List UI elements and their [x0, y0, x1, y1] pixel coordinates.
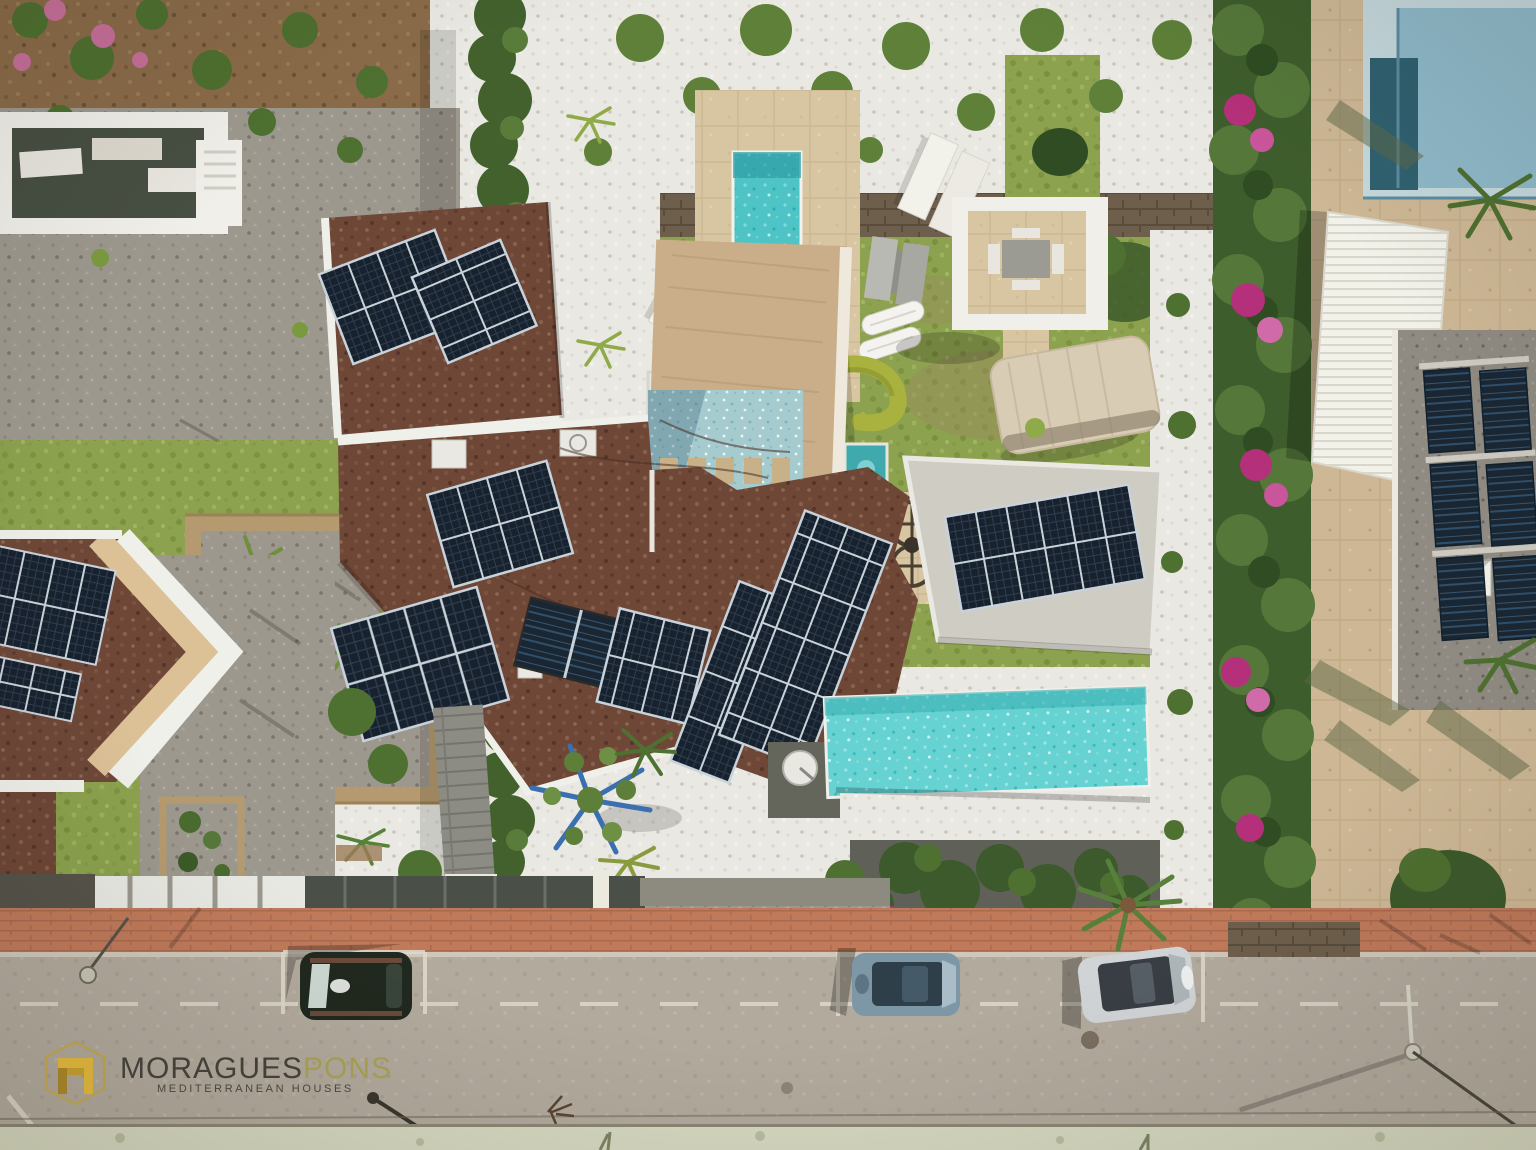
aerial-photo-stage: MORAGUESPONS MEDITERRANEAN HOUSES: [0, 0, 1536, 1150]
vignette: [0, 0, 1536, 1150]
aerial-photo: MORAGUESPONS MEDITERRANEAN HOUSES: [0, 0, 1536, 1150]
brand-wordmark: MORAGUESPONS: [120, 1052, 392, 1085]
brand-tagline: MEDITERRANEAN HOUSES: [157, 1083, 354, 1095]
